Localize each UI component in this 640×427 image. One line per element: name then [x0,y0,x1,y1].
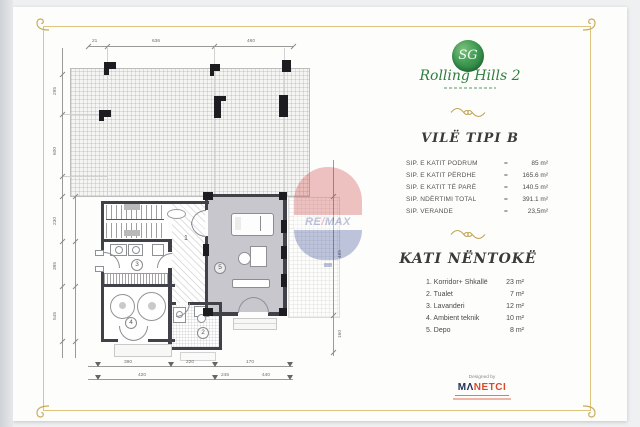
boiler-tank [137,292,166,321]
room-name: 2. Tualet [426,291,453,298]
column-marker [281,246,287,259]
grid-line [62,176,108,177]
column-marker [281,274,287,287]
corner-flourish-icon [582,398,598,419]
desk [250,246,267,267]
remax-text: RE/MAX [294,215,362,230]
room-name: 1. Korridor+ Shkallë [426,279,488,286]
spec-label: SIP. E KATIT PODRUM [406,160,478,167]
remax-re: RE [305,216,321,228]
dim-label: 245 [221,372,229,377]
room-area: 12 m² [506,303,524,310]
column-marker [279,95,288,117]
brochure-page: 1 2 3 4 5 21 636 460 295 600 230 395 545 [0,0,640,427]
door-jamb [95,250,104,256]
room-label: 5 [214,262,226,274]
room-list-row: 1. Korridor+ Shkallë 23 m² [426,279,524,290]
spec-label: SIP. NDËRTIMI TOTAL [406,196,476,203]
brand-name: Rolling Hills 2 [408,68,532,84]
remax-max: MAX [325,216,351,228]
room-list-row: 3. Lavanderi 12 m² [426,303,524,314]
dim-arrow [287,362,293,367]
column-marker [279,308,287,316]
dim-label: 460 [247,38,255,43]
wall-segment [101,201,104,253]
dim-label: 636 [152,38,160,43]
wall-segment [168,239,172,252]
wall-segment [101,267,104,342]
room-list-row: 5. Depo 8 m² [426,327,524,338]
corner-flourish-icon [34,17,50,38]
dim-arrow [95,362,101,367]
column-marker [99,110,104,121]
room-label: 2 [197,327,209,339]
sink-fixture [152,244,164,256]
dim-arrow [287,375,293,380]
column-marker [279,192,287,200]
corner-flourish-icon [34,398,50,419]
spec-value: 391.1 m² [510,196,548,203]
spec-row: SIP. E KATIT PËRDHE = 165.6 m² [406,172,548,182]
designer-tagline-line [453,398,511,400]
stair-rail [106,219,164,223]
equals-sign: = [504,184,508,191]
room-label: 3 [131,259,143,271]
wall-segment [101,239,168,242]
equals-sign: = [504,172,508,179]
car-outline [231,213,274,236]
washer-drum-icon [132,246,140,254]
spec-value: 165.6 m² [510,172,548,179]
designer-logo-rest: NETCI [474,382,507,393]
equals-sign: = [504,160,508,167]
room-label: 1 [184,235,188,242]
dim-label: 395 [52,262,57,270]
wall-segment [205,194,287,197]
dim-arrow [212,362,218,367]
dim-arrow [168,362,174,367]
tank-center-icon [148,302,156,310]
dimension-line [88,366,293,367]
designed-by-label: Designed by [460,374,503,379]
photo-left-edge [0,0,13,427]
washer-fixture [128,244,143,256]
dim-label: 545 [52,312,57,320]
equals-sign: = [504,208,508,215]
chair [238,252,251,265]
stair-label-block [124,230,140,236]
dim-label: 170 [246,359,254,364]
level-badge [167,209,186,219]
car-detail [235,217,241,230]
dimension-line [75,196,76,358]
divider-flourish-icon [450,228,486,246]
brand-tagline-line [444,87,496,89]
remax-watermark: RE/MAX [294,167,362,267]
room-list-row: 4. Ambient teknik 10 m² [426,315,524,326]
dim-label: 440 [262,372,270,377]
dimension-line [88,379,293,380]
spec-row: SIP. NDËRTIMI TOTAL = 391.1 m² [406,196,548,206]
column-marker [282,60,291,72]
room-list-row: 2. Tualet 7 m² [426,291,524,302]
equals-sign: = [504,196,508,203]
dim-label: 295 [52,87,57,95]
spec-row: SIP. VERANDE = 23,5m² [406,208,548,218]
designer-logo-a: Λ [467,382,474,393]
door-jamb [95,266,104,272]
boiler-tank [110,294,135,319]
bench [232,279,270,288]
designer-logo-m: M [458,382,467,393]
column-marker [214,98,221,118]
wall-segment [101,339,118,342]
spec-value: 85 m² [510,160,548,167]
dim-label: 220 [186,359,194,364]
wall-segment [168,268,172,350]
floor-title: KATI NËNTOKË [398,251,538,267]
room-area: 8 m² [510,327,524,334]
porch-steps [233,318,277,330]
room-label: 4 [125,317,137,329]
dim-label: 390 [124,359,132,364]
room-name: 4. Ambient teknik [426,315,479,322]
spec-label: SIP. E KATIT TË PARË [406,184,476,191]
dim-arrow [212,375,218,380]
dim-label: 420 [138,372,146,377]
room-name: 5. Depo [426,327,451,334]
designer-underline [455,395,509,396]
spec-row: SIP. E KATIT TË PARË = 140.5 m² [406,184,548,194]
wall-segment [219,302,222,350]
room-area: 10 m² [506,315,524,322]
dim-label: 160 [337,330,342,338]
stair-label-block [124,204,140,210]
column-marker [281,220,287,233]
dim-label: 600 [52,147,57,155]
wall-segment [101,284,175,287]
dim-label: 21 [92,38,97,43]
terrace-slab [70,68,310,197]
dim-arrow [95,375,101,380]
spec-label: SIP. E KATIT PËRDHE [406,172,476,179]
balloon-basket-icon [324,263,332,267]
dim-label: 230 [52,217,57,225]
porch-steps [114,344,172,357]
column-marker [210,64,214,76]
spec-row: SIP. E KATIT PODRUM = 85 m² [406,160,548,170]
dimension-line [88,46,293,47]
tank-center-icon [119,302,126,309]
column-marker [203,308,213,316]
room-name: 3. Lavanderi [426,303,465,310]
column-marker [203,192,213,200]
corner-flourish-icon [582,17,598,38]
villa-title: VILË TIPI B [408,131,532,146]
room-area: 7 m² [510,291,524,298]
spec-value: 140.5 m² [510,184,548,191]
designer-logo: MΛNETCI [446,382,518,393]
column-marker [203,244,209,256]
dimension-line [62,48,63,358]
wall-segment [101,201,209,204]
washer-drum-icon [115,246,123,254]
balloon-top-icon [294,167,362,215]
column-marker [104,62,109,75]
room-area: 23 m² [506,279,524,286]
wall-segment [170,347,222,350]
spec-value: 23,5m² [510,208,548,215]
balloon-bottom-icon [294,230,362,260]
spec-label: SIP. VERANDE [406,208,453,215]
windshield-line [260,216,261,231]
step-line [234,323,276,324]
divider-flourish-icon [450,106,486,124]
